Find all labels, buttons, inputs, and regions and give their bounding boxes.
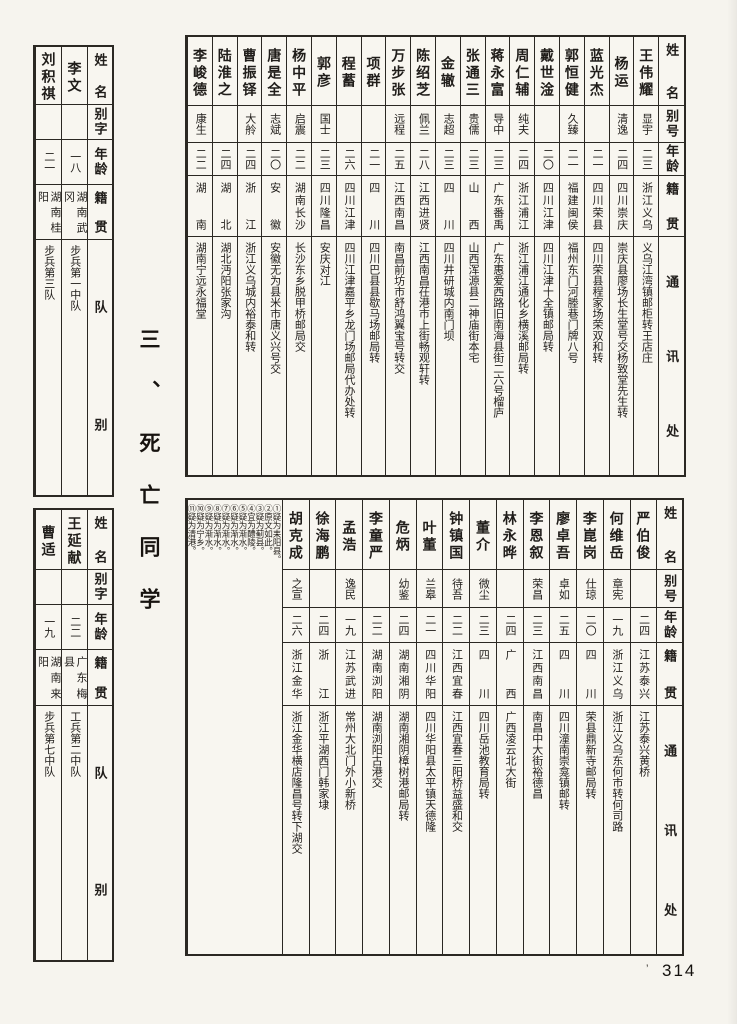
person-column: 蓝光杰 二一 四川荣县 四川荣县程家场荣双和转	[584, 37, 609, 475]
header-name-label: 姓名	[91, 510, 110, 569]
person-age: 二四	[219, 148, 232, 170]
person-origin: 湖南浏阳	[370, 643, 383, 705]
person-origin: 湖南	[194, 176, 207, 236]
person-origin: 四川隆昌	[318, 176, 331, 236]
header-origin-label: 籍贯	[660, 643, 679, 705]
person-contact: 湖南湘阴樟树港邮局转	[397, 706, 410, 821]
person-name: 戴世淦	[537, 44, 557, 99]
person-age: 一九	[42, 616, 55, 638]
person-contact: 四川潼南崇龛镇邮转	[557, 706, 570, 810]
person-origin: 湖南长沙	[293, 176, 306, 236]
person-column: 曹振铎 大舲 二四 浙江 浙江义乌城内裕泰和转	[237, 37, 262, 475]
squad-table-bottom: 姓名 别字 年龄 籍贯 队别 王延献 二二 广东梅县 工兵第二中队 曹适 一九 …	[33, 508, 114, 962]
person-column: 蒋永富 导中 二三 广东番禹 广东惠爱西路旧南海县街二六号榴庐	[485, 37, 510, 475]
person-origin: 浙江义乌	[610, 643, 623, 705]
person-contact: 常州大北门外小新桥	[343, 706, 356, 810]
person-contact: 湖南浏阳古港交	[370, 706, 383, 788]
deceased-roster-table-bottom: 姓名 别号 年龄 籍贯 通讯处 严伯俊 二四 江苏泰兴 江苏泰兴黄桥 何维岳 章…	[185, 498, 684, 956]
person-column: 陆淮之 二四 湖北 湖北沔阳张家沟	[212, 37, 237, 475]
header-age-label: 年龄	[91, 147, 110, 177]
person-alias: 志斌	[268, 113, 281, 135]
person-age: 二三	[466, 148, 479, 170]
person-name: 胡克成	[286, 507, 306, 562]
roster-header-column: 姓名 别号 年龄 籍贯 通讯处	[656, 500, 682, 954]
person-column: 李童严 二二 湖南浏阳 湖南浏阳古港交	[362, 500, 389, 954]
ink-speck: ’	[646, 963, 648, 975]
person-name: 李恩叙	[526, 507, 546, 562]
person-contact: 浙江义乌城内裕泰和转	[243, 237, 256, 352]
person-origin: 广东番禹	[491, 176, 504, 236]
person-origin: 四川荣县	[590, 176, 603, 236]
person-name: 曹适	[39, 521, 59, 559]
person-squad: 步兵第三队	[42, 240, 55, 300]
editor-footnotes: ①疑为耒阳县。 ②原文如此。 ③疑为蓟县。 ④宜为醴陵。 ⑤疑为渐水。 ⑥疑为渐…	[188, 500, 282, 954]
person-origin: 湖北	[219, 176, 232, 236]
person-column: 林永晔 二四 广西 广西凌云北大街	[496, 500, 523, 954]
person-column: 程蓄 二六 四川江津 四川江津嘉平乡龙门场邮局代办处转	[336, 37, 361, 475]
person-age: 二一	[367, 148, 380, 170]
person-alias: 之宣	[290, 578, 303, 600]
person-alias: 仕琼	[584, 578, 597, 600]
person-age: 二四	[615, 148, 628, 170]
person-column: 陈绍芝 佩兰 二八 江西进贤 江西南昌茌港市上街畅观轩转	[410, 37, 435, 475]
person-column: 项群 二一 四川 四川巴县县歇马场邮局转	[361, 37, 386, 475]
person-alias: 远程	[392, 113, 405, 135]
page-number: 314	[662, 961, 696, 981]
person-name: 郭彦	[314, 52, 334, 90]
footnote-item: ①疑为耒阳县。	[272, 504, 281, 564]
header-squad-label: 队别	[91, 240, 110, 491]
person-alias: 启震	[293, 113, 306, 135]
person-age: 二三	[442, 148, 455, 170]
person-age: 二三	[640, 148, 653, 170]
person-name: 严伯俊	[633, 507, 653, 562]
person-name: 危炳	[393, 516, 413, 554]
person-contact: 四川岳池教育局转	[477, 706, 490, 799]
person-origin: 山西	[466, 176, 479, 236]
person-alias: 待吾	[450, 578, 463, 600]
person-contact: 浙江义乌东何市转何司路	[610, 706, 623, 832]
person-age: 二一	[566, 148, 579, 170]
person-age: 二〇	[584, 614, 597, 636]
person-alias: 纯夫	[516, 113, 529, 135]
person-squad: 步兵第七中队	[42, 706, 55, 777]
person-origin: 广东梅县	[62, 650, 87, 705]
person-origin: 浙江	[243, 176, 256, 236]
person-alias: 显宇	[640, 113, 653, 135]
person-alias: 卓如	[557, 578, 570, 600]
header-contact-label: 通讯处	[660, 706, 679, 954]
person-contact: 四川巴县县歇马场邮局转	[367, 237, 380, 363]
person-origin: 江苏武进	[343, 643, 356, 705]
person-name: 廖卓吾	[553, 507, 573, 562]
person-origin: 福建闽侯	[566, 176, 579, 236]
header-alias-label: 别字	[91, 107, 110, 137]
person-column: 戴世淦 二〇 四川江津 四川江津十全镇邮局转	[534, 37, 559, 475]
person-age: 二五	[392, 148, 405, 170]
person-name: 刘积祺	[39, 48, 59, 103]
squad-header-column: 姓名 别字 年龄 籍贯 队别	[87, 510, 112, 960]
person-contact: 浙江平湖西门韩家埭	[316, 706, 329, 810]
person-column: 李恩叙 荣昌 二三 江西南昌 南昌中大街裕德昌	[523, 500, 550, 954]
person-alias: 荣昌	[530, 578, 543, 600]
person-age: 二〇	[268, 148, 281, 170]
person-name: 林永晔	[500, 507, 520, 562]
person-name: 李崑岗	[580, 507, 600, 562]
person-age: 二二	[68, 616, 81, 638]
person-contact: 浙江金华横店隆昌号转下湖交	[290, 706, 303, 854]
person-column: 刘积祺 二一 湖南桂阳 步兵第三队	[35, 47, 61, 495]
person-contact: 安庆对江	[318, 237, 331, 286]
header-name-label: 姓名	[662, 37, 681, 105]
person-origin: 湖南湘阴	[397, 643, 410, 705]
person-contact: 山西浑源县二神庙街本宅	[466, 237, 479, 363]
person-age: 二五	[557, 614, 570, 636]
person-alias: 佩兰	[417, 113, 430, 135]
person-origin: 浙江浦江	[516, 176, 529, 236]
person-origin: 四川华阳	[423, 643, 436, 705]
section-title: 三、死亡同学	[134, 328, 164, 640]
person-age: 二四	[316, 614, 329, 636]
person-contact: 四川华阳县太平镇天德隆	[423, 706, 436, 832]
person-column: 钟镇国 待吾 二二 江西宜春 江西宜春三阳桥益盛和交	[442, 500, 469, 954]
person-age: 二二	[450, 614, 463, 636]
header-name-label: 姓名	[660, 500, 679, 569]
person-age: 二二	[194, 148, 207, 170]
person-column: 周仁辅 纯夫 二四 浙江浦江 浙江浦江通化乡横溪邮局转	[509, 37, 534, 475]
person-age: 一八	[68, 151, 81, 173]
person-contact: 福州东门河塍巷门牌八号	[566, 237, 579, 363]
person-contact: 江西宜春三阳桥益盛和交	[450, 706, 463, 832]
person-column: 王伟耀 显宇 二三 浙江义乌 义乌江湾镇邮柜转王店庄	[633, 37, 658, 475]
person-origin: 江西进贤	[417, 176, 430, 236]
person-column: 廖卓吾 卓如 二五 四川 四川潼南崇龛镇邮转	[549, 500, 576, 954]
person-contact: 湖北沔阳张家沟	[219, 237, 232, 319]
person-age: 一九	[610, 614, 623, 636]
person-contact: 四川江津十全镇邮局转	[541, 237, 554, 352]
person-name: 杨中平	[289, 44, 309, 99]
person-age: 二一	[42, 151, 55, 173]
person-name: 程蓄	[339, 52, 359, 90]
person-origin: 四川崇庆	[615, 176, 628, 236]
person-age: 二一	[423, 614, 436, 636]
person-column: 金辙 志超 二三 四川 四川井研城内南门坝	[435, 37, 460, 475]
person-name: 万步张	[388, 44, 408, 99]
person-age: 二六	[290, 614, 303, 636]
person-origin: 安徽	[268, 176, 281, 236]
person-name: 蓝光杰	[587, 44, 607, 99]
person-column: 叶董 兰皋 二一 四川华阳 四川华阳县太平镇天德隆	[416, 500, 443, 954]
person-alias: 久臻	[566, 113, 579, 135]
person-contact: 浙江浦江通化乡横溪邮局转	[516, 237, 529, 374]
person-origin: 湖南来阳	[36, 650, 61, 705]
person-contact: 四川江津嘉平乡龙门场邮局代办处转	[342, 237, 355, 418]
person-contact: 崇庆县廖场长生堂号交杨致堂先生转	[615, 237, 628, 418]
person-contact: 广西凌云北大街	[503, 706, 516, 788]
person-contact: 四川井研城内南门坝	[442, 237, 455, 341]
person-name: 徐海鹏	[313, 507, 333, 562]
person-contact: 南昌中大街裕德昌	[530, 706, 543, 799]
person-contact: 南昌前坊市舒鸿翼宝号转交	[392, 237, 405, 374]
person-column: 曹适 一九 湖南来阳 步兵第七中队	[35, 510, 61, 960]
person-alias: 贵儒	[466, 113, 479, 135]
person-column: 严伯俊 二四 江苏泰兴 江苏泰兴黄桥	[630, 500, 657, 954]
person-column: 危炳 幼鉴 二四 湖南湘阴 湖南湘阴樟树港邮局转	[389, 500, 416, 954]
header-age-label: 年龄	[662, 144, 681, 174]
person-origin: 江西南昌	[392, 176, 405, 236]
person-age: 二四	[397, 614, 410, 636]
person-name: 李峻德	[190, 44, 210, 99]
person-name: 何维岳	[607, 507, 627, 562]
person-contact: 广东惠爱西路旧南海县街二六号榴庐	[491, 237, 504, 418]
person-origin: 浙江金华	[290, 643, 303, 705]
person-alias: 逸民	[343, 578, 356, 600]
header-origin-label: 籍贯	[91, 650, 110, 705]
person-column: 李文 一八 湖南武冈 步兵第一中队	[61, 47, 87, 495]
person-name: 杨运	[612, 52, 632, 90]
person-contact: 湖南宁远永福堂	[194, 237, 207, 319]
person-origin: 四川	[367, 176, 380, 236]
person-contact: 安徽无为县米市唐义兴号交	[268, 237, 281, 374]
person-name: 曹振铎	[240, 44, 260, 99]
person-name: 董介	[473, 516, 493, 554]
person-origin: 湖南武冈	[62, 185, 87, 239]
person-column: 郭恒健 久臻 二一 福建闽侯 福州东门河塍巷门牌八号	[559, 37, 584, 475]
person-contact: 长沙东乡脱甲桥邮局交	[293, 237, 306, 352]
person-origin: 四川	[477, 643, 490, 705]
person-alias: 清逸	[615, 113, 628, 135]
person-column: 何维岳 章宪 一九 浙江义乌 浙江义乌东何市转何司路	[603, 500, 630, 954]
person-contact: 四川荣县程家场荣双和转	[590, 237, 603, 363]
person-alias: 幼鉴	[397, 578, 410, 600]
person-squad: 步兵第一中队	[68, 240, 81, 311]
person-alias: 国士	[318, 113, 331, 135]
person-origin: 浙江	[316, 643, 329, 705]
header-squad-label: 队别	[91, 706, 110, 956]
person-age: 二四	[503, 614, 516, 636]
person-column: 杨运 清逸 二四 四川崇庆 崇庆县廖场长生堂号交杨致堂先生转	[609, 37, 634, 475]
person-origin: 江西南昌	[530, 643, 543, 705]
person-origin: 江西宜春	[450, 643, 463, 705]
person-contact: 江苏泰兴黄桥	[637, 706, 650, 777]
person-column: 李峻德 康生 二二 湖南 湖南宁远永福堂	[187, 37, 212, 475]
person-alias: 兰皋	[423, 578, 436, 600]
person-contact: 江西南昌茌港市上街畅观轩转	[417, 237, 430, 385]
person-column: 张通三 贵儒 二三 山西 山西浑源县二神庙街本宅	[460, 37, 485, 475]
header-name-label: 姓名	[91, 47, 110, 104]
person-name: 陆淮之	[215, 44, 235, 99]
person-alias: 导中	[491, 113, 504, 135]
person-name: 钟镇国	[446, 507, 466, 562]
person-alias: 志超	[442, 113, 455, 135]
person-age: 二三	[530, 614, 543, 636]
header-contact-label: 通讯处	[662, 237, 681, 475]
person-column: 杨中平 启震 二二 湖南长沙 长沙东乡脱甲桥邮局交	[286, 37, 311, 475]
person-column: 万步张 远程 二五 江西南昌 南昌前坊市舒鸿翼宝号转交	[385, 37, 410, 475]
header-age-label: 年龄	[660, 610, 679, 640]
header-alias-label: 别号	[660, 574, 679, 604]
person-alias: 大舲	[243, 113, 256, 135]
person-name: 孟浩	[339, 516, 359, 554]
header-origin-label: 籍贯	[662, 176, 681, 236]
person-name: 唐是全	[264, 44, 284, 99]
person-alias: 微尘	[477, 578, 490, 600]
person-age: 二四	[516, 148, 529, 170]
person-age: 二二	[370, 614, 383, 636]
person-column: 董介 微尘 二三 四川 四川岳池教育局转	[469, 500, 496, 954]
editor-footnotes-column: ①疑为耒阳县。 ②原文如此。 ③疑为蓟县。 ④宜为醴陵。 ⑤疑为渐水。 ⑥疑为渐…	[187, 500, 282, 954]
person-alias: 康生	[194, 113, 207, 135]
person-origin: 江苏泰兴	[637, 643, 650, 705]
roster-header-column: 姓名 别号 年龄 籍贯 通讯处	[658, 37, 684, 475]
person-column: 郭彦 国士 二三 四川隆昌 安庆对江	[311, 37, 336, 475]
person-origin: 四川江津	[342, 176, 355, 236]
person-name: 周仁辅	[512, 44, 532, 99]
person-age: 二六	[342, 148, 355, 170]
person-origin: 浙江义乌	[640, 176, 653, 236]
header-age-label: 年龄	[91, 612, 110, 642]
header-alias-label: 别字	[91, 572, 110, 602]
person-age: 二二	[293, 148, 306, 170]
squad-table-top: 姓名 别字 年龄 籍贯 队别 李文 一八 湖南武冈 步兵第一中队 刘积祺 二一 …	[33, 45, 114, 497]
person-age: 一九	[343, 614, 356, 636]
person-column: 唐是全 志斌 二〇 安徽 安徽无为县米市唐义兴号交	[261, 37, 286, 475]
person-origin: 四川	[557, 643, 570, 705]
person-name: 项群	[364, 52, 384, 90]
header-alias-label: 别号	[662, 109, 681, 139]
person-name: 李文	[65, 57, 85, 95]
person-age: 二三	[477, 614, 490, 636]
person-column: 王延献 二二 广东梅县 工兵第二中队	[61, 510, 87, 960]
person-column: 徐海鹏 二四 浙江 浙江平湖西门韩家埭	[309, 500, 336, 954]
person-name: 郭恒健	[562, 44, 582, 99]
person-origin: 湖南桂阳	[36, 185, 61, 239]
person-age: 二四	[637, 614, 650, 636]
person-origin: 广西	[503, 643, 516, 705]
person-origin: 四川	[584, 643, 597, 705]
person-column: 孟浩 逸民 一九 江苏武进 常州大北门外小新桥	[335, 500, 362, 954]
person-age: 二四	[243, 148, 256, 170]
header-origin-label: 籍贯	[91, 185, 110, 239]
person-squad: 工兵第二中队	[68, 706, 81, 777]
scanned-page: 三、死亡同学 姓名 别字 年龄 籍贯 队别 李文 一八 湖南武冈 步兵第一中队 …	[0, 0, 737, 1024]
person-alias: 章宪	[610, 578, 623, 600]
person-contact: 义乌江湾镇邮柜转王店庄	[640, 237, 653, 363]
person-name: 叶董	[420, 516, 440, 554]
person-column: 李崑岗 仕琼 二〇 四川 荣县鼎新寺邮局转	[576, 500, 603, 954]
deceased-roster-table-top: 姓名 别号 年龄 籍贯 通讯处 王伟耀 显宇 二三 浙江义乌 义乌江湾镇邮柜转王…	[185, 35, 686, 477]
person-age: 二〇	[541, 148, 554, 170]
person-age: 二三	[491, 148, 504, 170]
person-name: 金辙	[438, 52, 458, 90]
person-name: 王伟耀	[636, 44, 656, 99]
squad-header-column: 姓名 别字 年龄 籍贯 队别	[87, 47, 112, 495]
person-column: 胡克成 之宣 二六 浙江金华 浙江金华横店隆昌号转下湖交	[282, 500, 309, 954]
person-origin: 四川江津	[541, 176, 554, 236]
person-name: 王延献	[65, 512, 85, 567]
person-age: 二八	[417, 148, 430, 170]
person-age: 二一	[590, 148, 603, 170]
person-name: 李童严	[366, 507, 386, 562]
person-name: 蒋永富	[488, 44, 508, 99]
person-age: 二三	[318, 148, 331, 170]
person-contact: 荣县鼎新寺邮局转	[584, 706, 597, 799]
person-name: 张通三	[463, 44, 483, 99]
person-origin: 四川	[442, 176, 455, 236]
person-name: 陈绍芝	[413, 44, 433, 99]
